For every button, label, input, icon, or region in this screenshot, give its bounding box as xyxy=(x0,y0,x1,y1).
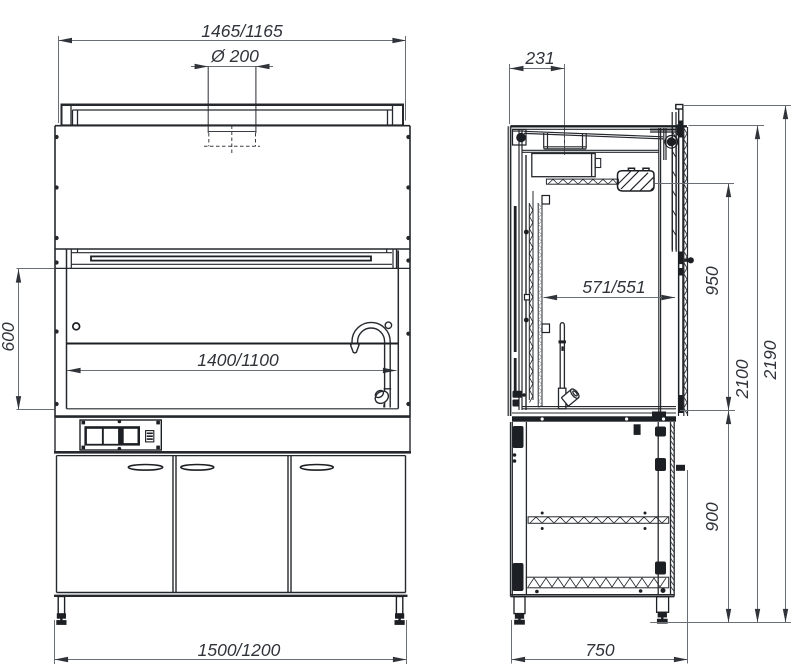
svg-text:1400/1100: 1400/1100 xyxy=(197,350,279,370)
svg-text:571/551: 571/551 xyxy=(582,277,645,297)
svg-text:1465/1165: 1465/1165 xyxy=(201,21,283,41)
svg-text:900: 900 xyxy=(702,502,722,531)
svg-text:1500/1200: 1500/1200 xyxy=(198,640,281,660)
svg-text:2100: 2100 xyxy=(732,359,752,399)
svg-text:2190: 2190 xyxy=(760,340,780,380)
svg-text:750: 750 xyxy=(585,640,614,660)
svg-text:600: 600 xyxy=(0,322,18,351)
svg-text:950: 950 xyxy=(702,266,722,295)
svg-text:Ø 200: Ø 200 xyxy=(210,46,259,66)
svg-text:231: 231 xyxy=(524,48,554,68)
